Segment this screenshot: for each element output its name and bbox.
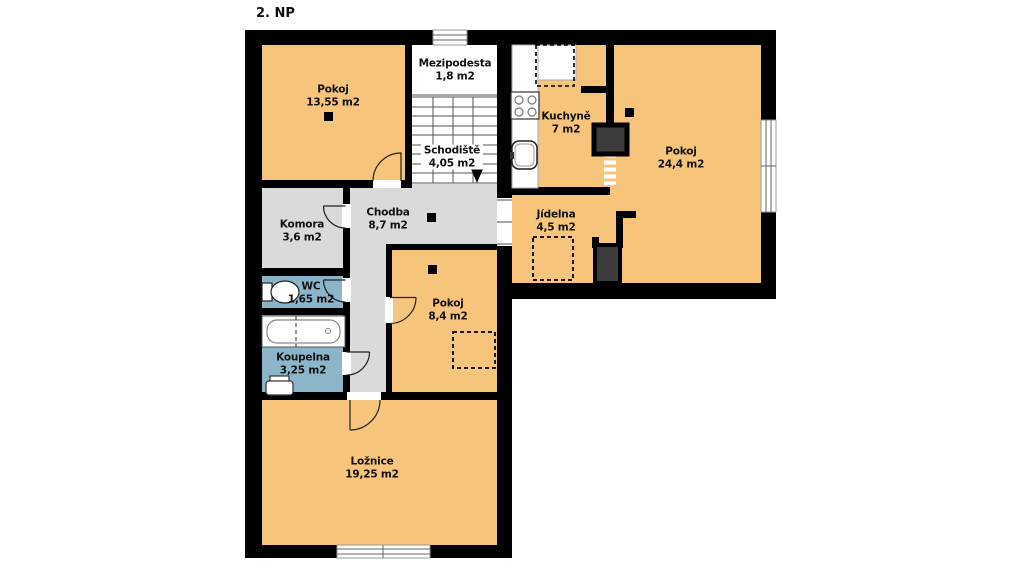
- room-label-kuchyne: Kuchyně 7 m2: [541, 111, 590, 136]
- room-area: 3,6 m2: [280, 231, 324, 244]
- wall-center-spine: [497, 45, 512, 558]
- wall-kuchyne-pokoj24: [606, 30, 614, 128]
- room-area: 1,65 m2: [288, 293, 334, 306]
- window-bottom-loznice: [337, 545, 430, 558]
- window-right-pokoj24: [761, 120, 776, 212]
- room-name: Mezipodesta: [419, 58, 492, 71]
- room-label-pokoj-84: Pokoj 8,4 m2: [428, 298, 467, 323]
- room-name: Komora: [280, 219, 324, 232]
- room-label-koupelna: Koupelna 3,25 m2: [276, 352, 330, 377]
- marker-pokoj24: [625, 108, 634, 117]
- window-top-mezipodesta: [433, 30, 467, 45]
- chimney-2: [595, 245, 620, 283]
- room-label-chodba: Chodba 8,7 m2: [366, 207, 409, 232]
- room-name: Koupelna: [276, 352, 330, 365]
- wall-komora-bottom: [262, 268, 350, 276]
- passage-chodba-jidelna: [497, 198, 512, 246]
- door-gap-wc: [342, 278, 351, 302]
- door-gap-koupelna: [342, 352, 351, 375]
- room-name: Pokoj: [306, 84, 360, 97]
- floor-plan-drawing: [0, 0, 1024, 576]
- wall-top: [245, 30, 776, 45]
- wall-pokoj84-top: [386, 244, 512, 250]
- wall-stair-left: [405, 45, 412, 184]
- wall-wc-bottom: [262, 308, 350, 315]
- washbasin-symbol: [266, 381, 293, 395]
- floor-plan: 2. NP Pokoj 13,55 m2 Mezipodesta 1,8 m2 …: [0, 0, 1024, 576]
- room-pokoj-1-floor: [262, 45, 405, 182]
- room-area: 24,4 m2: [658, 158, 704, 171]
- room-area: 7 m2: [541, 123, 590, 136]
- room-label-schodiste: Schodiště 4,05 m2: [421, 145, 483, 170]
- room-label-jidelna: Jídelna 4,5 m2: [536, 209, 575, 234]
- room-label-pokoj-24: Pokoj 24,4 m2: [658, 146, 704, 171]
- wall-left: [245, 30, 262, 558]
- room-label-mezipodesta: Mezipodesta 1,8 m2: [419, 58, 492, 83]
- kitchen-counter-top: [538, 45, 576, 80]
- room-label-loznice: Ložnice 19,25 m2: [345, 456, 399, 481]
- sink-symbol: [512, 141, 537, 169]
- room-name: Jídelna: [536, 209, 575, 222]
- room-name: Schodiště: [424, 145, 480, 158]
- room-label-komora: Komora 3,6 m2: [280, 219, 324, 244]
- passage-kuchyne-dashed: [604, 152, 616, 185]
- room-name: Ložnice: [345, 456, 399, 469]
- door-gap-komora: [342, 204, 351, 228]
- marker-pokoj84: [428, 265, 437, 274]
- room-label-wc: WC 1,65 m2: [288, 281, 334, 306]
- room-name: Pokoj: [658, 146, 704, 159]
- room-area: 3,25 m2: [276, 364, 330, 377]
- room-name: Chodba: [366, 207, 409, 220]
- chimney-1: [594, 125, 627, 154]
- wall-rightwing-bottom: [497, 283, 776, 299]
- door-gap-pokoj84: [385, 297, 393, 323]
- room-area: 4,05 m2: [424, 157, 480, 170]
- door-gap-pokoj1: [373, 180, 401, 188]
- window-frame: [433, 30, 467, 45]
- room-name: Pokoj: [428, 298, 467, 311]
- room-name: WC: [288, 281, 334, 294]
- wall-jidelna-L-v: [616, 211, 623, 248]
- room-area: 1,8 m2: [419, 70, 492, 83]
- room-area: 8,7 m2: [366, 219, 409, 232]
- room-area: 8,4 m2: [428, 310, 467, 323]
- room-area: 19,25 m2: [345, 468, 399, 481]
- marker-chodba: [427, 213, 436, 222]
- room-area: 13,55 m2: [306, 96, 360, 109]
- door-gap-loznice: [347, 392, 381, 400]
- sink-faucet: [510, 152, 514, 159]
- room-area: 4,5 m2: [536, 221, 575, 234]
- marker-pokoj1: [324, 112, 333, 121]
- room-name: Kuchyně: [541, 111, 590, 124]
- room-label-pokoj-1: Pokoj 13,55 m2: [306, 84, 360, 109]
- floor-title: 2. NP: [256, 6, 295, 21]
- wall-kuchyne-stub: [581, 86, 607, 93]
